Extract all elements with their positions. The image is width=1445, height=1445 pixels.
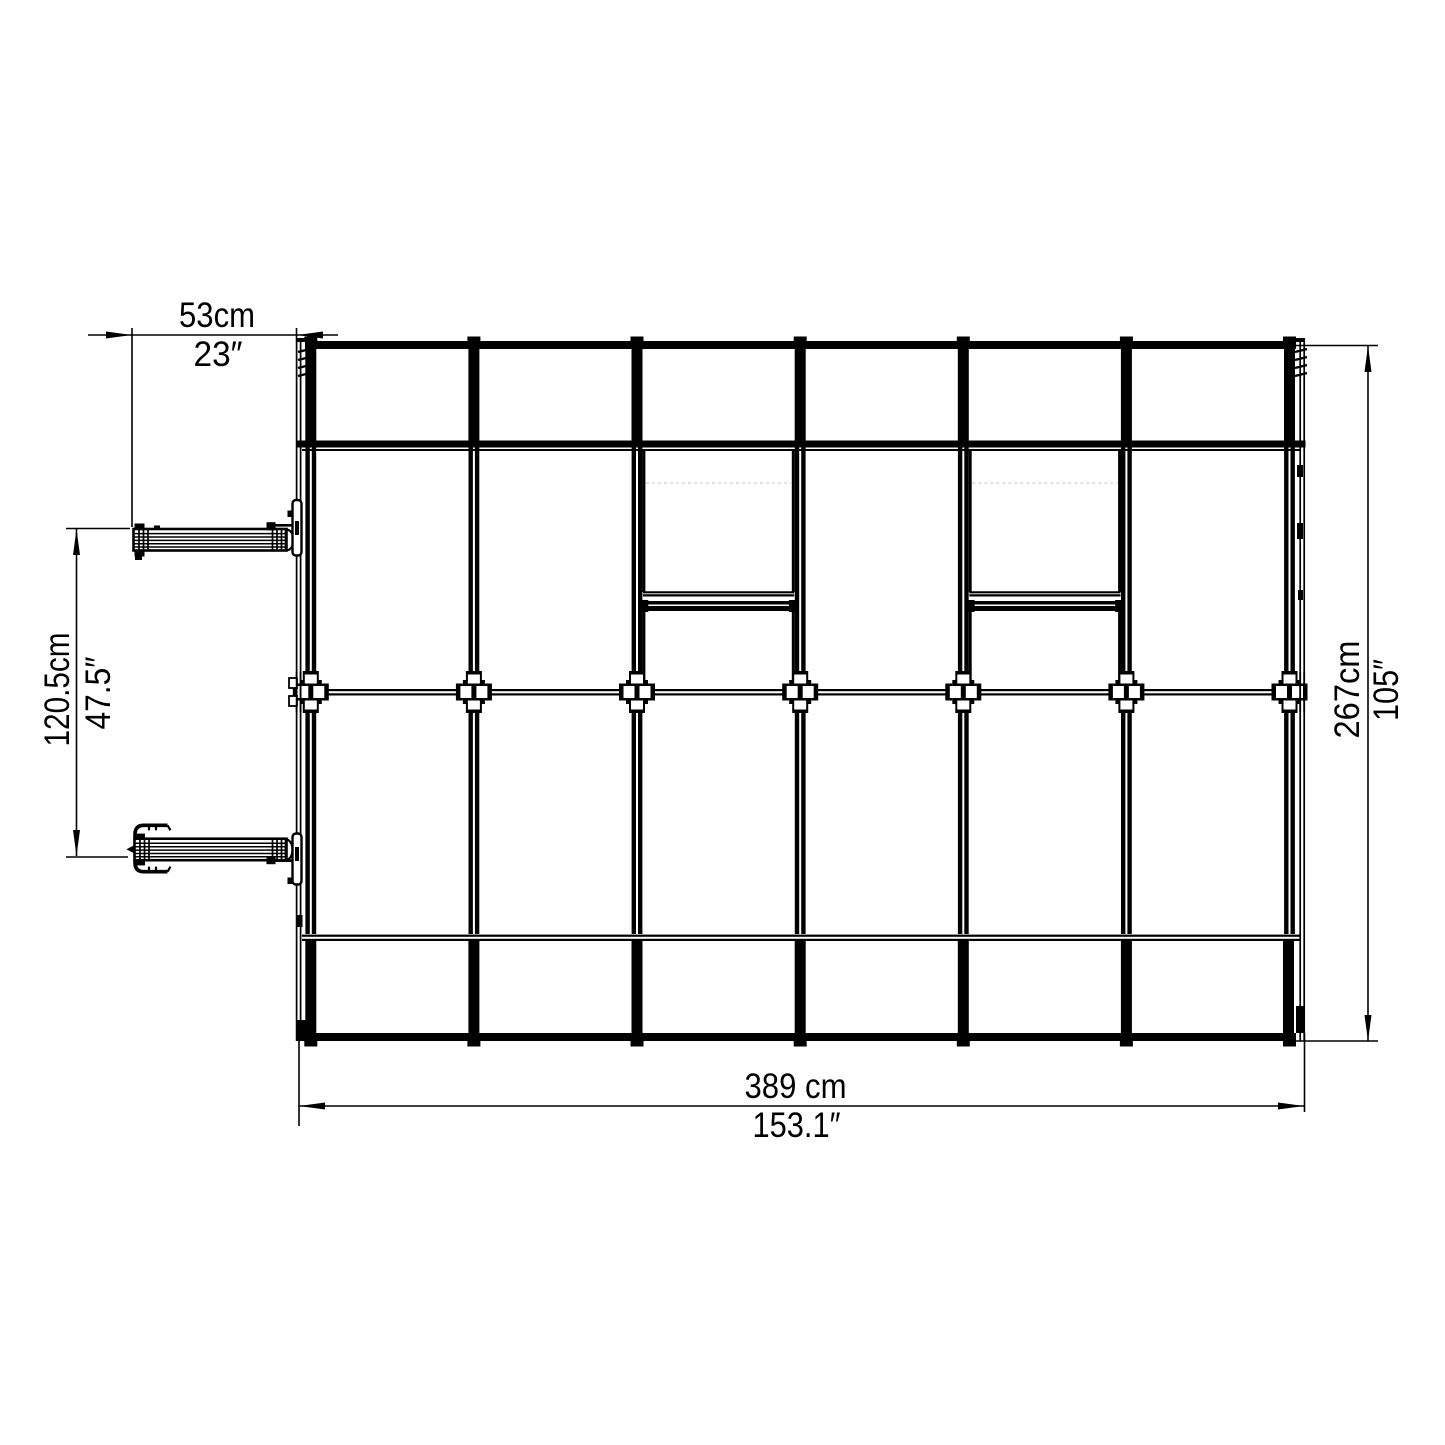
- svg-text:105″: 105″: [1367, 659, 1406, 721]
- svg-text:389 cm: 389 cm: [745, 1067, 847, 1106]
- svg-text:53cm: 53cm: [179, 296, 255, 335]
- svg-text:267cm: 267cm: [1328, 641, 1367, 739]
- svg-text:47.5″: 47.5″: [79, 657, 118, 730]
- svg-text:23″: 23″: [194, 335, 243, 374]
- svg-text:120.5cm: 120.5cm: [38, 633, 77, 747]
- svg-text:153.1″: 153.1″: [753, 1106, 841, 1145]
